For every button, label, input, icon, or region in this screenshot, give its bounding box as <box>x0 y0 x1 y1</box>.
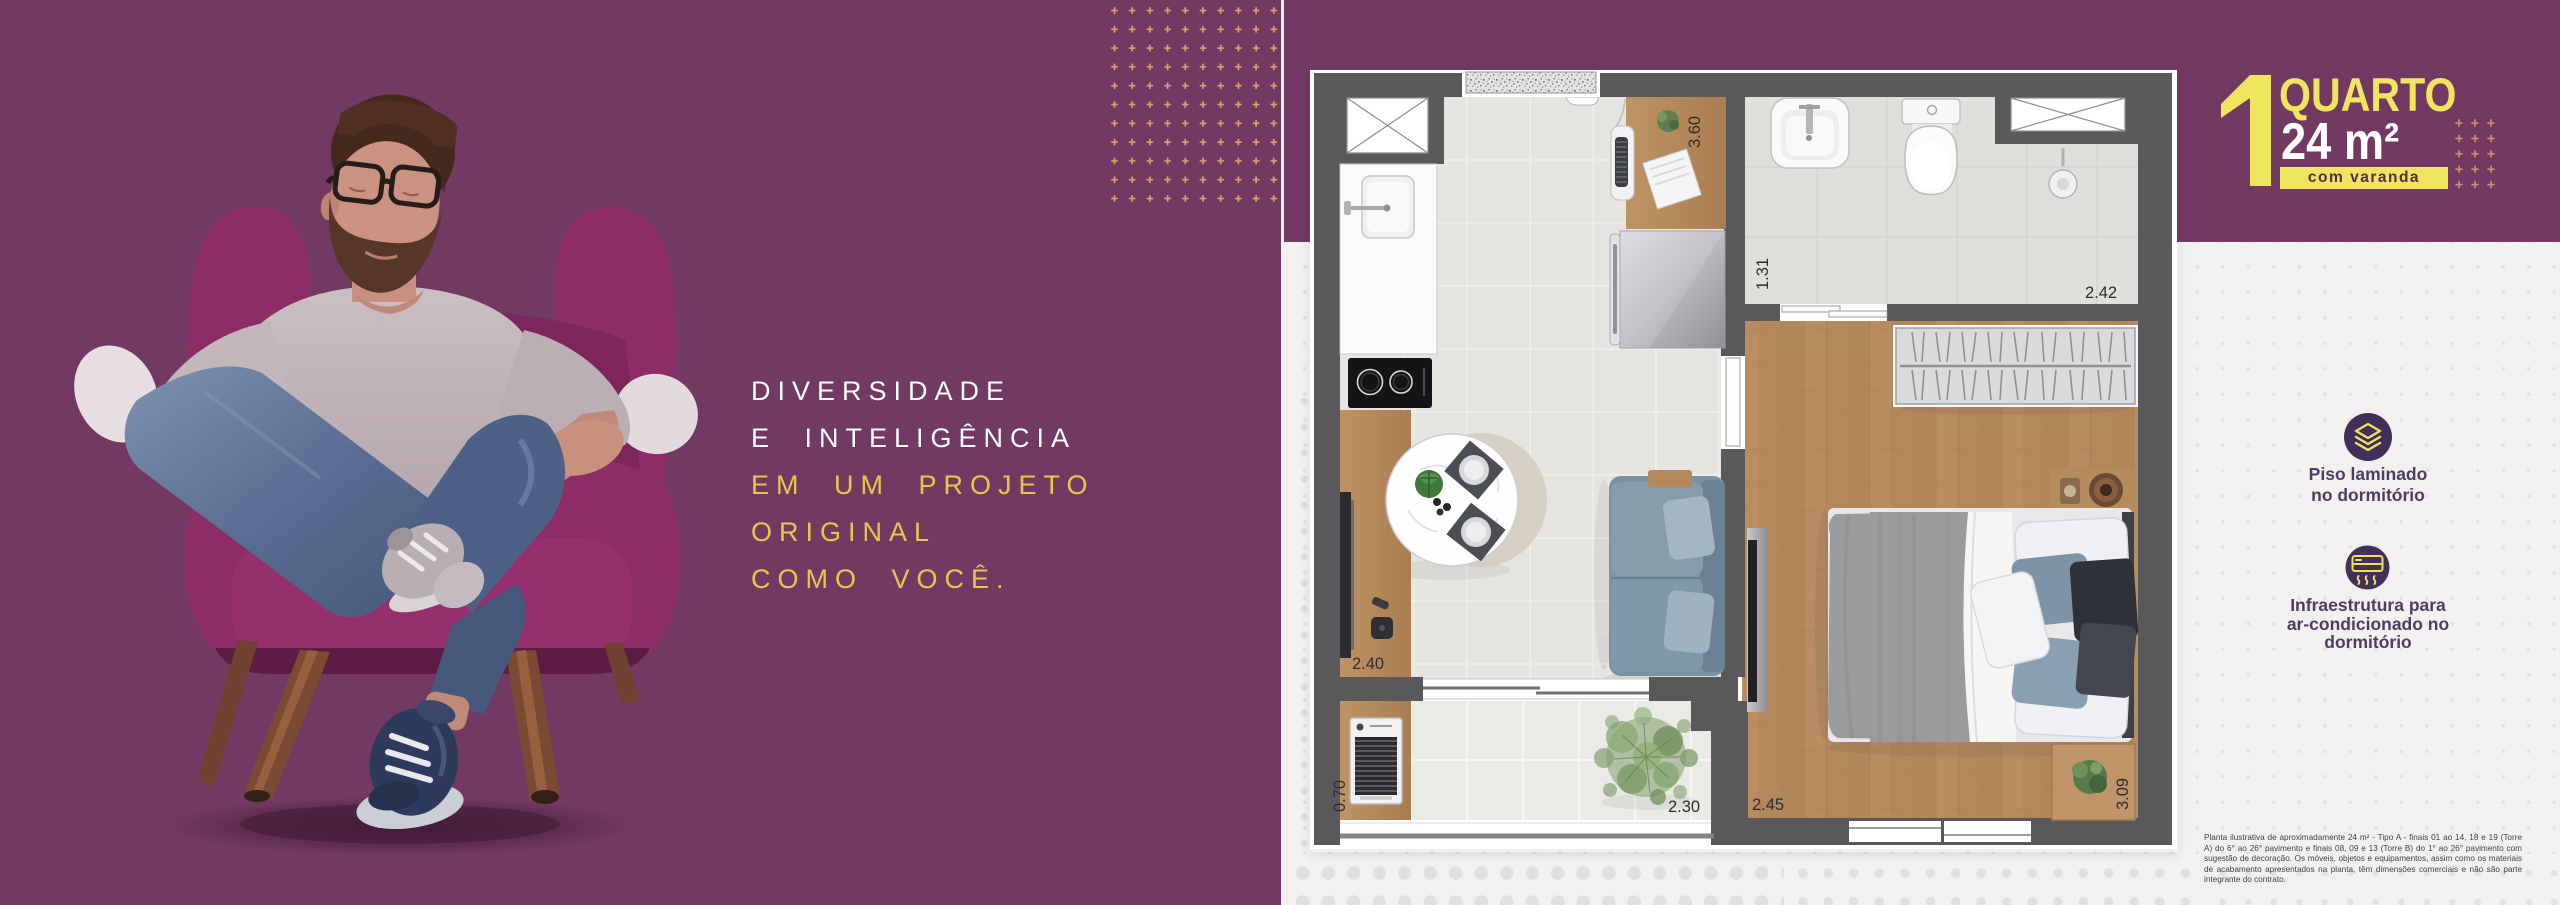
svg-text:2.42: 2.42 <box>2085 284 2117 302</box>
svg-text:3.60: 3.60 <box>1686 116 1704 148</box>
svg-text:2.45: 2.45 <box>1752 796 1784 814</box>
svg-text:2.30: 2.30 <box>1668 798 1700 816</box>
svg-text:0.70: 0.70 <box>1331 780 1349 812</box>
svg-text:2.40: 2.40 <box>1352 655 1384 673</box>
svg-text:3.09: 3.09 <box>2114 778 2132 810</box>
svg-text:1.31: 1.31 <box>1754 258 1772 290</box>
